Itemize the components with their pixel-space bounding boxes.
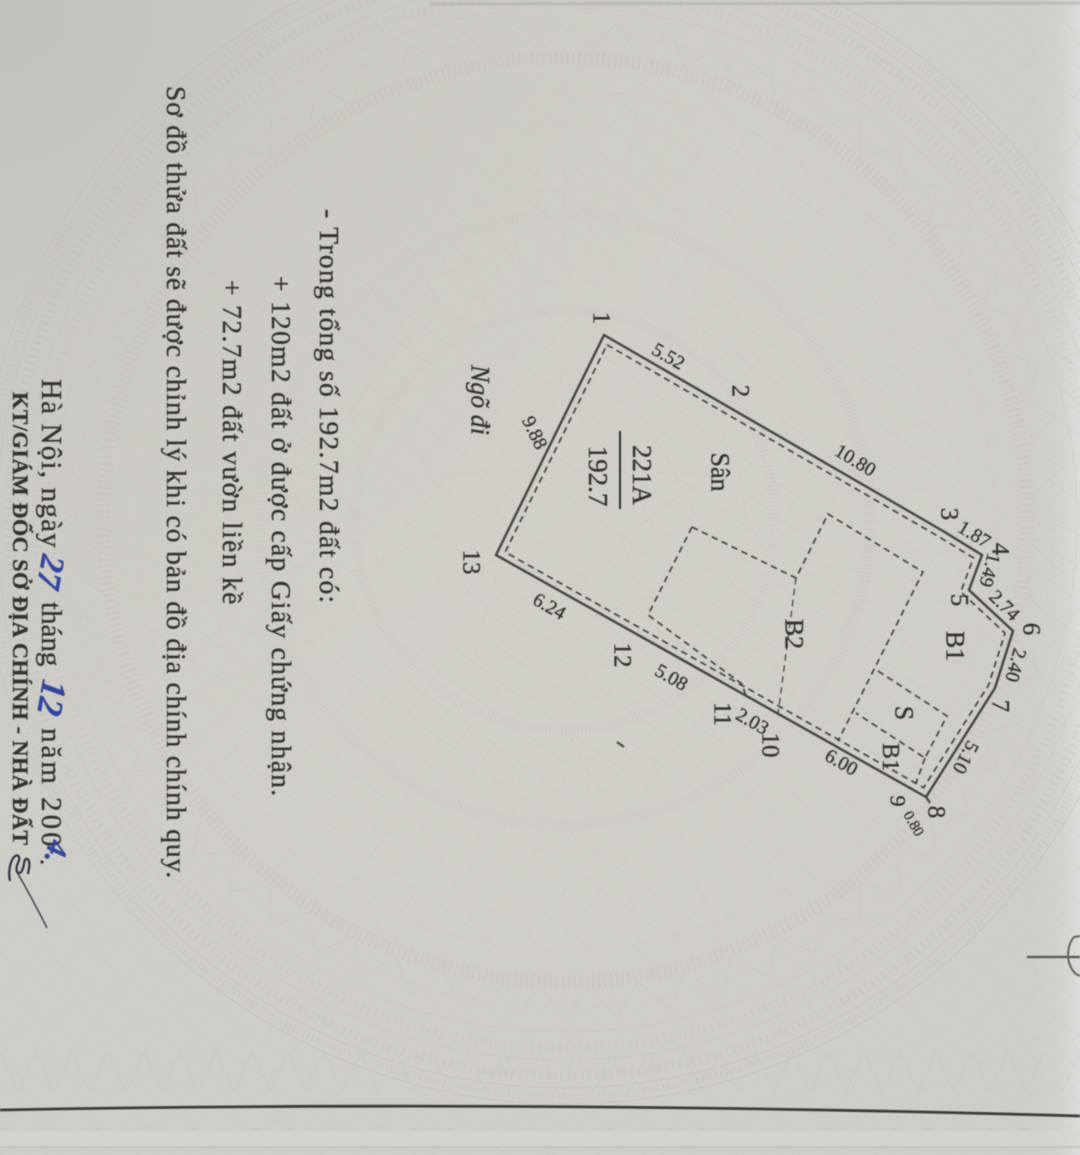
- svg-text:Ngõ đi: Ngõ đi: [466, 364, 495, 435]
- svg-text:- Trong tổng số 192.7m2 đất có: - Trong tổng số 192.7m2 đất có:: [314, 209, 345, 605]
- svg-text:B1: B1: [941, 631, 970, 661]
- svg-text:+ 72.7m2 đất vườn liền kề: + 72.7m2 đất vườn liền kề: [217, 280, 248, 606]
- svg-text:3: 3: [936, 508, 963, 521]
- svg-text:S: S: [890, 706, 919, 720]
- svg-text:7: 7: [987, 700, 1014, 713]
- svg-text:Hà Nội, ngày: Hà Nội, ngày: [35, 379, 67, 549]
- svg-text:5: 5: [946, 594, 973, 607]
- svg-text:8: 8: [923, 806, 950, 819]
- svg-text:11: 11: [709, 702, 736, 726]
- svg-text:6: 6: [1018, 623, 1045, 636]
- svg-text:1: 1: [588, 312, 615, 325]
- svg-text:B1: B1: [877, 743, 903, 771]
- svg-text:Sơ đồ thửa đất sẽ được chỉnh l: Sơ đồ thửa đất sẽ được chỉnh lý khi có b…: [161, 86, 192, 879]
- svg-text:13: 13: [458, 550, 485, 575]
- svg-text:12: 12: [29, 677, 75, 719]
- svg-text:221A: 221A: [627, 445, 657, 506]
- svg-text:+ 120m2 đất ở được cấp Giấy ch: + 120m2 đất ở được cấp Giấy chứng nhận.: [266, 276, 297, 797]
- svg-text:B2: B2: [780, 619, 809, 649]
- svg-text:192.7: 192.7: [583, 446, 613, 507]
- svg-text:Sân: Sân: [706, 453, 735, 492]
- svg-text:năm 200: năm 200: [35, 728, 67, 850]
- svg-text:tháng: tháng: [35, 602, 67, 666]
- svg-text:2: 2: [727, 385, 754, 398]
- svg-text:9: 9: [886, 796, 911, 807]
- svg-text:12: 12: [609, 643, 636, 668]
- svg-text:KT/GIÁM ĐỐC SỞ ĐỊA CHÍNH - NHÀ: KT/GIÁM ĐỐC SỞ ĐỊA CHÍNH - NHÀ ĐẤT: [8, 392, 33, 846]
